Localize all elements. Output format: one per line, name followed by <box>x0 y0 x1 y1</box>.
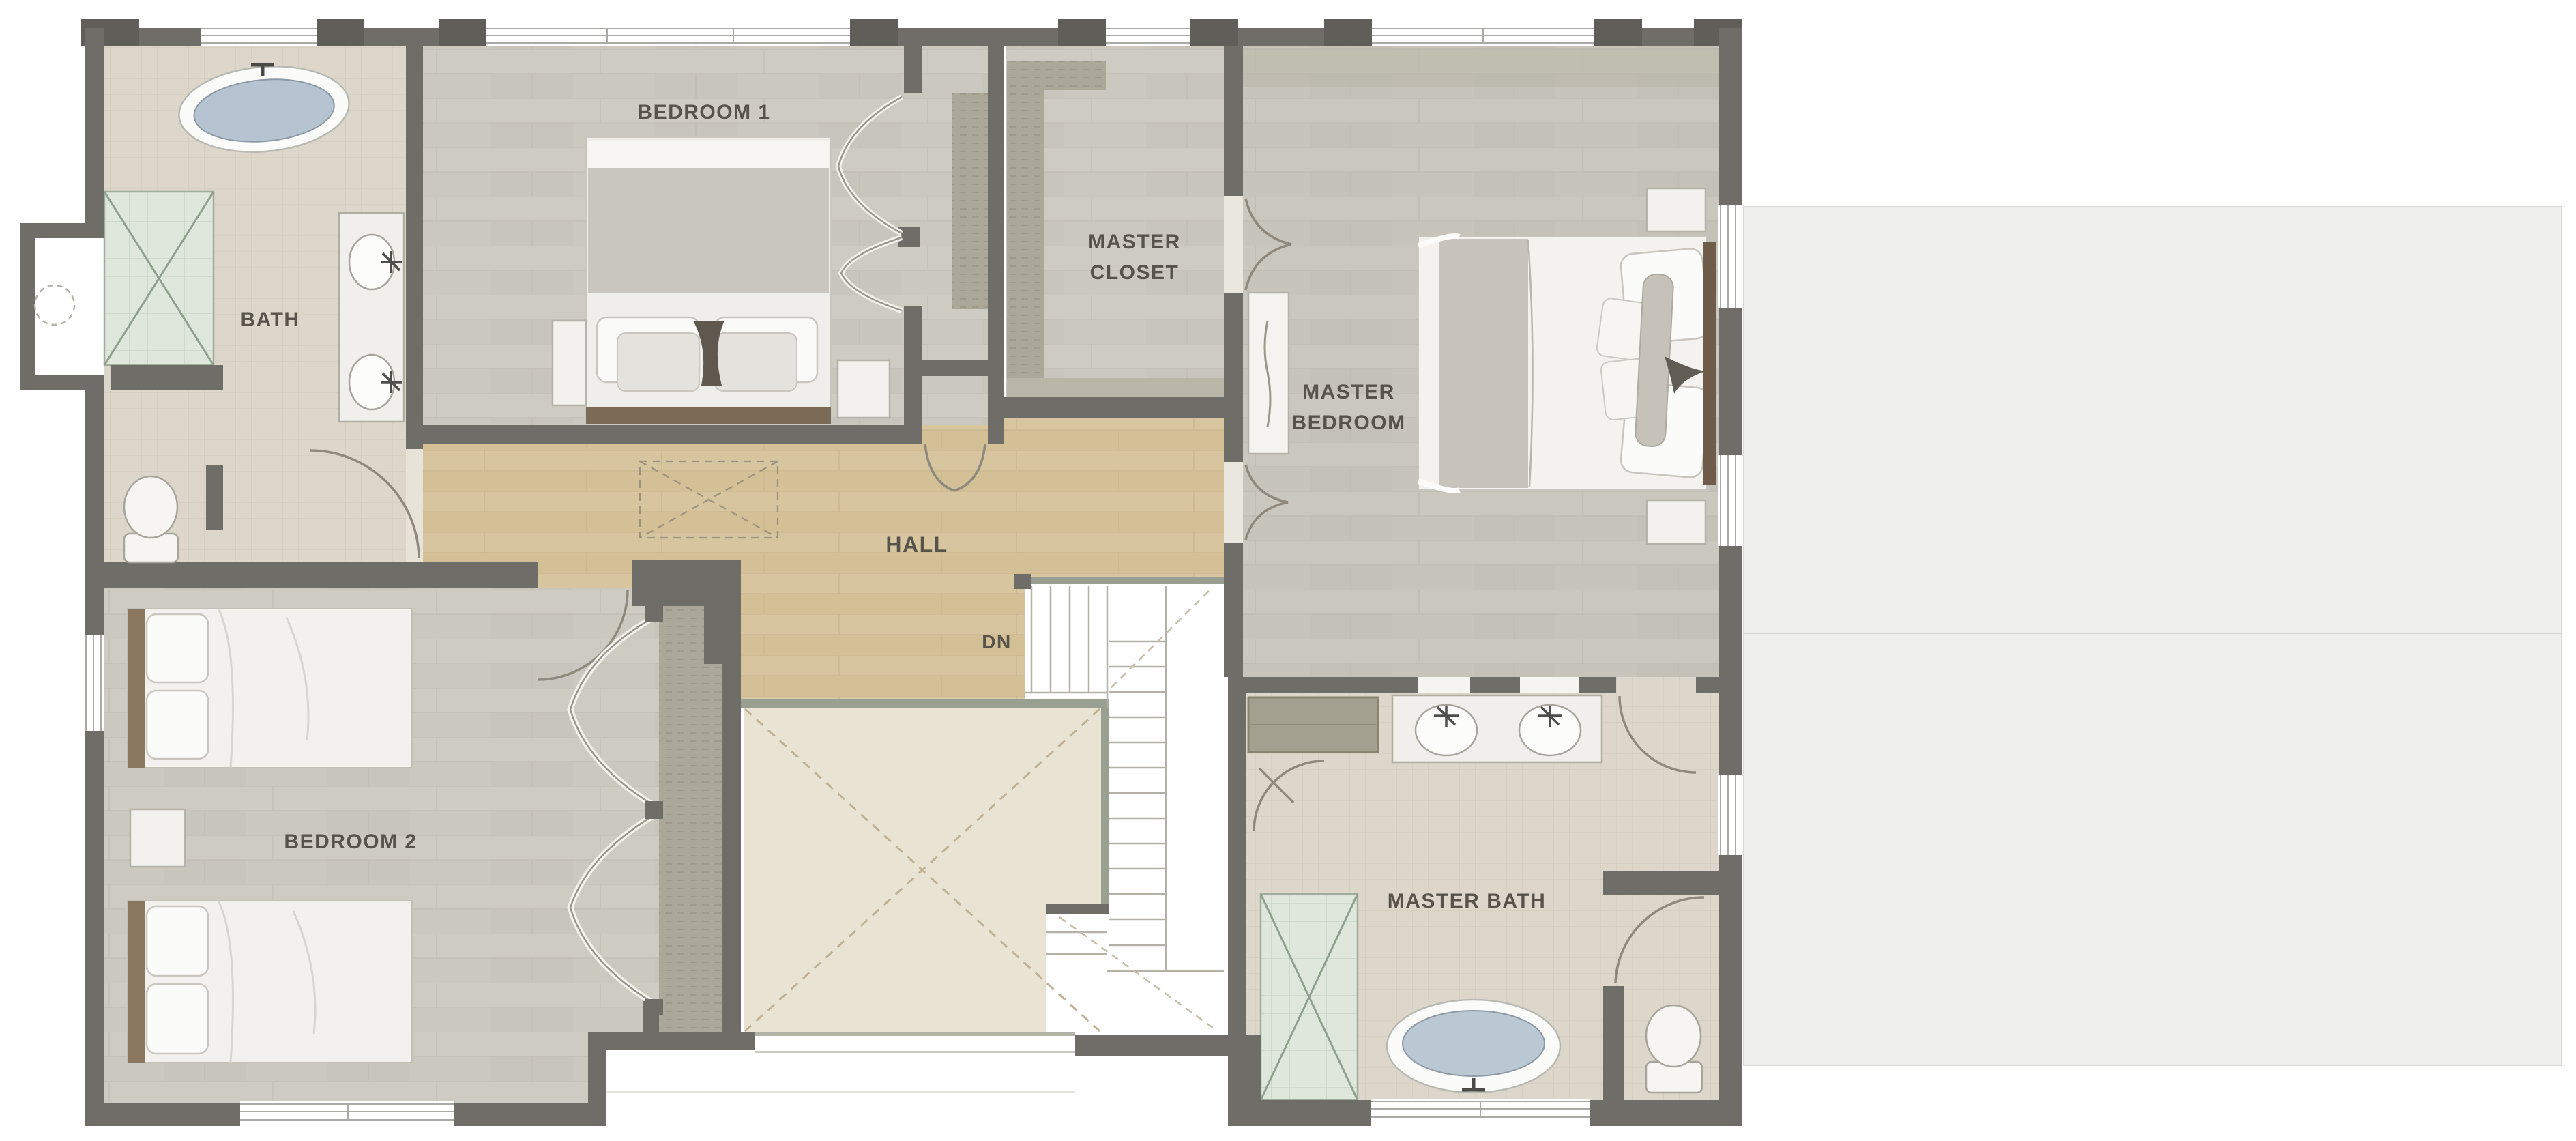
svg-text:BATH: BATH <box>240 308 299 331</box>
svg-text:MASTER BATH: MASTER BATH <box>1388 890 1547 912</box>
svg-text:BEDROOM 2: BEDROOM 2 <box>284 831 417 853</box>
svg-text:CLOSET: CLOSET <box>1090 261 1180 284</box>
svg-text:BEDROOM 1: BEDROOM 1 <box>637 101 770 124</box>
svg-text:DN: DN <box>982 631 1011 652</box>
svg-text:MASTER: MASTER <box>1302 381 1395 403</box>
svg-text:BEDROOM: BEDROOM <box>1291 411 1405 434</box>
svg-text:MASTER: MASTER <box>1088 231 1181 253</box>
svg-text:HALL: HALL <box>885 532 948 557</box>
